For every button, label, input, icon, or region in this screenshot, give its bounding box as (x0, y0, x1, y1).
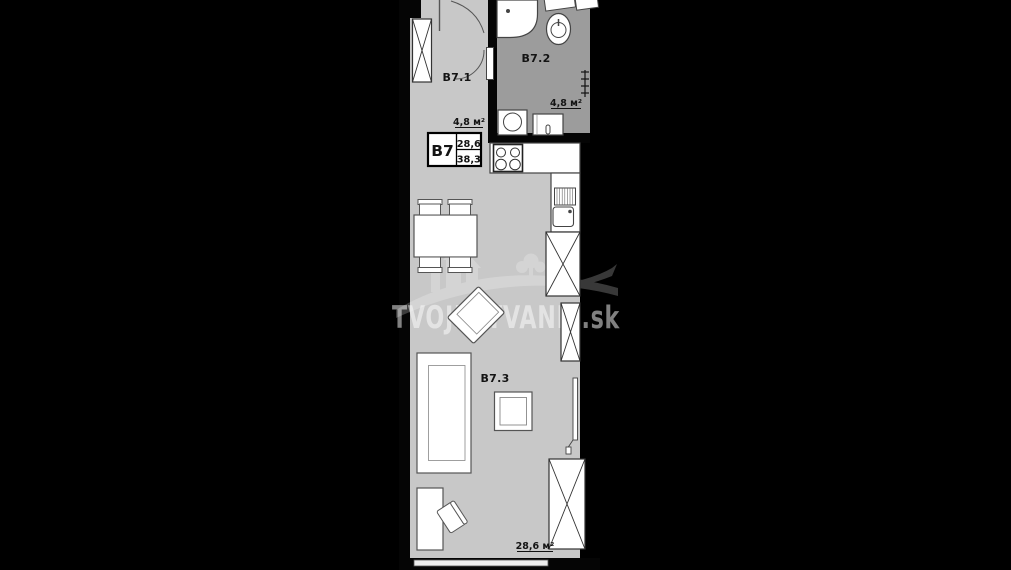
area-label-bathroom: 4,8 м² (550, 98, 582, 109)
desk (417, 488, 443, 550)
bathtub-faucet-dot (506, 9, 510, 13)
unit-area-bottom: 38,3 (457, 155, 481, 166)
tall-cabinet-2 (561, 303, 580, 361)
sink-faucet (546, 125, 550, 134)
area-label-living: 28,6 м² (516, 541, 555, 552)
washing-machine (498, 110, 527, 135)
coffee-table (495, 392, 533, 431)
dining-chair (448, 257, 472, 273)
sofa (417, 353, 471, 473)
area-label-hallway: 4,8 м² (453, 117, 485, 128)
floorplan-svg: TVOJEBYVANIE.sk (0, 0, 1011, 570)
watermark-text: TVOJEBYVANIE.sk (392, 300, 620, 336)
wall-left (399, 0, 410, 560)
bathroom-sink (533, 114, 563, 135)
wardrobe (549, 459, 585, 549)
dining-chair (418, 200, 442, 216)
tall-cabinet-1 (546, 232, 580, 296)
unit-info-box: B7 28,6 38,3 (428, 133, 481, 166)
room-label-hallway: B7.1 (442, 71, 471, 84)
dining-chair (448, 200, 472, 216)
dining-table (414, 215, 477, 257)
stove (494, 145, 523, 172)
wall-bath-divider-top (488, 0, 497, 48)
room-label-living: B7.3 (480, 372, 509, 385)
floorplan-canvas: TVOJEBYVANIE.sk (0, 0, 1011, 570)
room-label-bathroom: B7.2 (521, 52, 550, 65)
unit-area-top: 28,6 (457, 139, 481, 150)
hallway-wardrobe (413, 19, 432, 82)
kitchen-sink (553, 188, 576, 227)
unit-label: B7 (431, 142, 454, 160)
sink-drainboard (557, 188, 573, 205)
window-bottom (414, 560, 548, 566)
wall-entry-stub (399, 0, 421, 18)
kitchen-faucet-dot (568, 210, 572, 214)
dining-chair (418, 257, 442, 273)
wall-bath-divider-bottom (488, 80, 497, 133)
